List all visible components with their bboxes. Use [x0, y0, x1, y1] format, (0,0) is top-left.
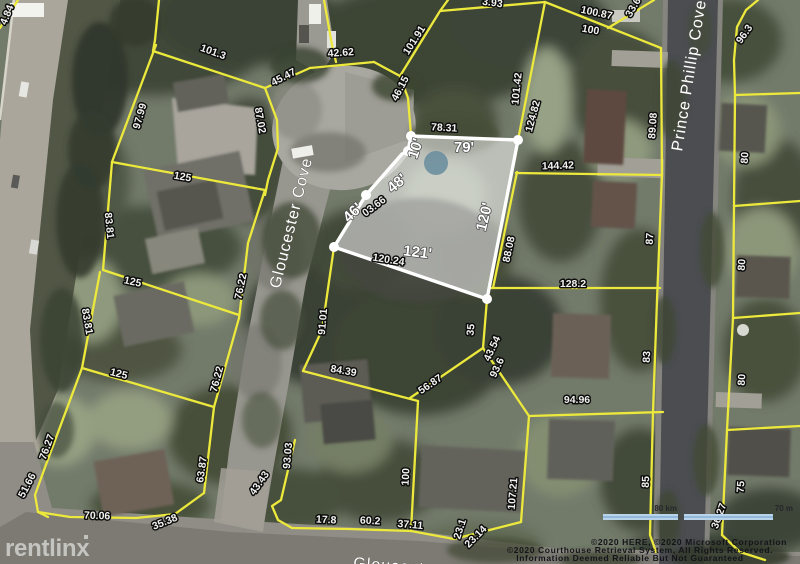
svg-text:79': 79'	[454, 139, 474, 156]
svg-text:89.08: 89.08	[646, 112, 660, 139]
svg-text:83: 83	[641, 351, 653, 363]
svg-text:100: 100	[400, 468, 413, 486]
svg-text:78.31: 78.31	[431, 121, 458, 134]
svg-text:70 m: 70 m	[775, 504, 793, 513]
svg-text:75: 75	[735, 480, 748, 493]
svg-text:42.62: 42.62	[327, 46, 354, 60]
svg-text:80: 80	[736, 258, 749, 271]
svg-text:93.03: 93.03	[281, 442, 295, 469]
svg-text:94.96: 94.96	[564, 394, 590, 406]
svg-text:144.42: 144.42	[542, 159, 575, 172]
svg-text:70.06: 70.06	[84, 510, 111, 523]
svg-text:35: 35	[465, 323, 478, 336]
svg-text:rentlinx: rentlinx	[5, 535, 90, 562]
svg-text:91.01: 91.01	[316, 308, 330, 335]
svg-text:121': 121'	[402, 242, 432, 262]
svg-text:Information Deemed Reliable Bu: Information Deemed Reliable But Not Guar…	[516, 553, 743, 563]
svg-text:80: 80	[736, 373, 749, 386]
svg-text:60.2: 60.2	[360, 514, 381, 527]
svg-text:37.11: 37.11	[397, 518, 424, 532]
svg-text:85: 85	[640, 476, 652, 488]
svg-text:128.2: 128.2	[560, 278, 586, 290]
svg-text:87: 87	[644, 232, 657, 245]
svg-text:80: 80	[739, 151, 752, 164]
svg-text:17.8: 17.8	[316, 513, 337, 526]
svg-text:80 km: 80 km	[654, 504, 677, 513]
